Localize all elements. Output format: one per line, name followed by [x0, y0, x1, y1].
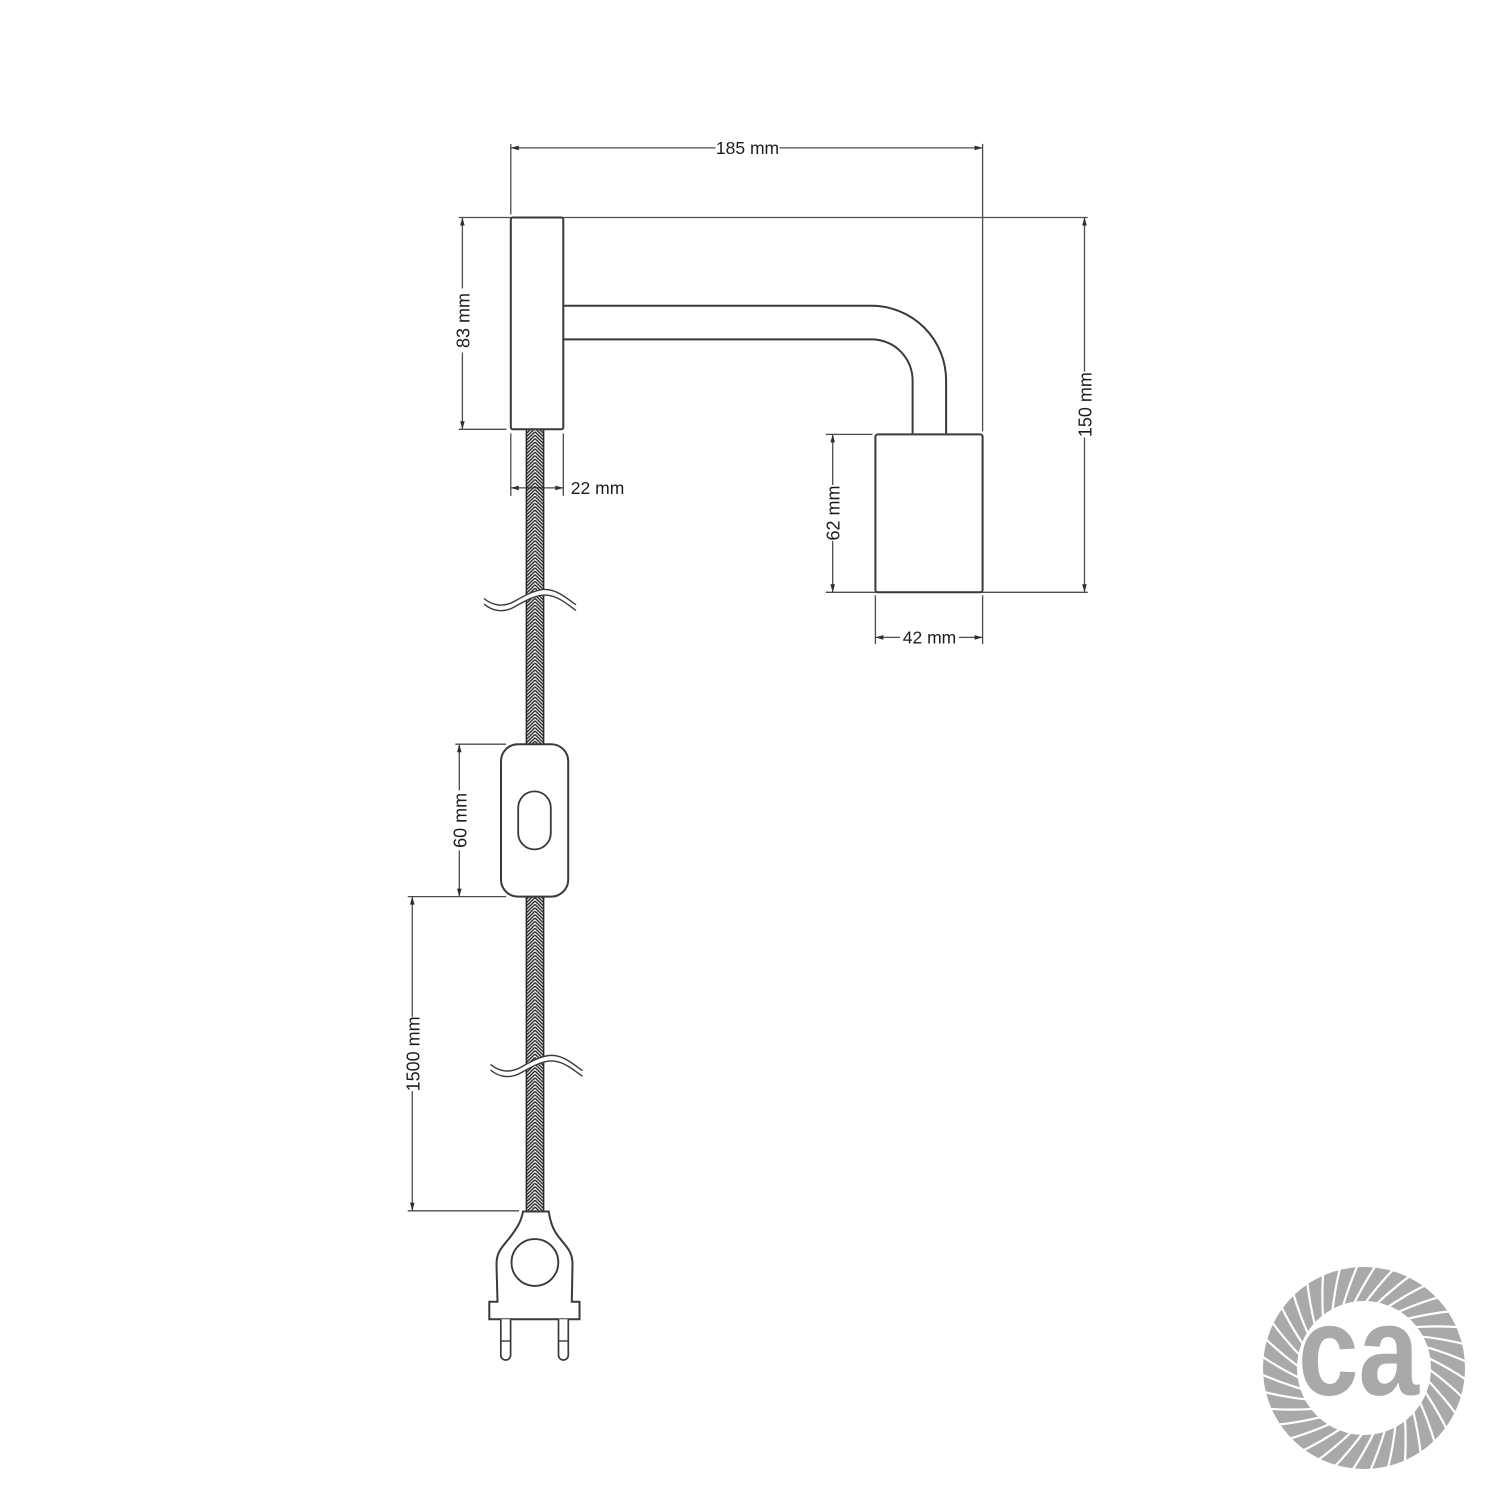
svg-text:ca: ca [1298, 1280, 1420, 1423]
svg-text:150 mm: 150 mm [1076, 372, 1096, 437]
svg-text:83 mm: 83 mm [453, 293, 473, 348]
svg-text:62 mm: 62 mm [824, 485, 844, 540]
svg-text:22 mm: 22 mm [571, 478, 624, 498]
svg-text:185 mm: 185 mm [716, 138, 779, 158]
svg-text:60 mm: 60 mm [450, 793, 470, 848]
svg-text:1500 mm: 1500 mm [403, 1016, 423, 1091]
svg-text:42 mm: 42 mm [903, 627, 956, 647]
